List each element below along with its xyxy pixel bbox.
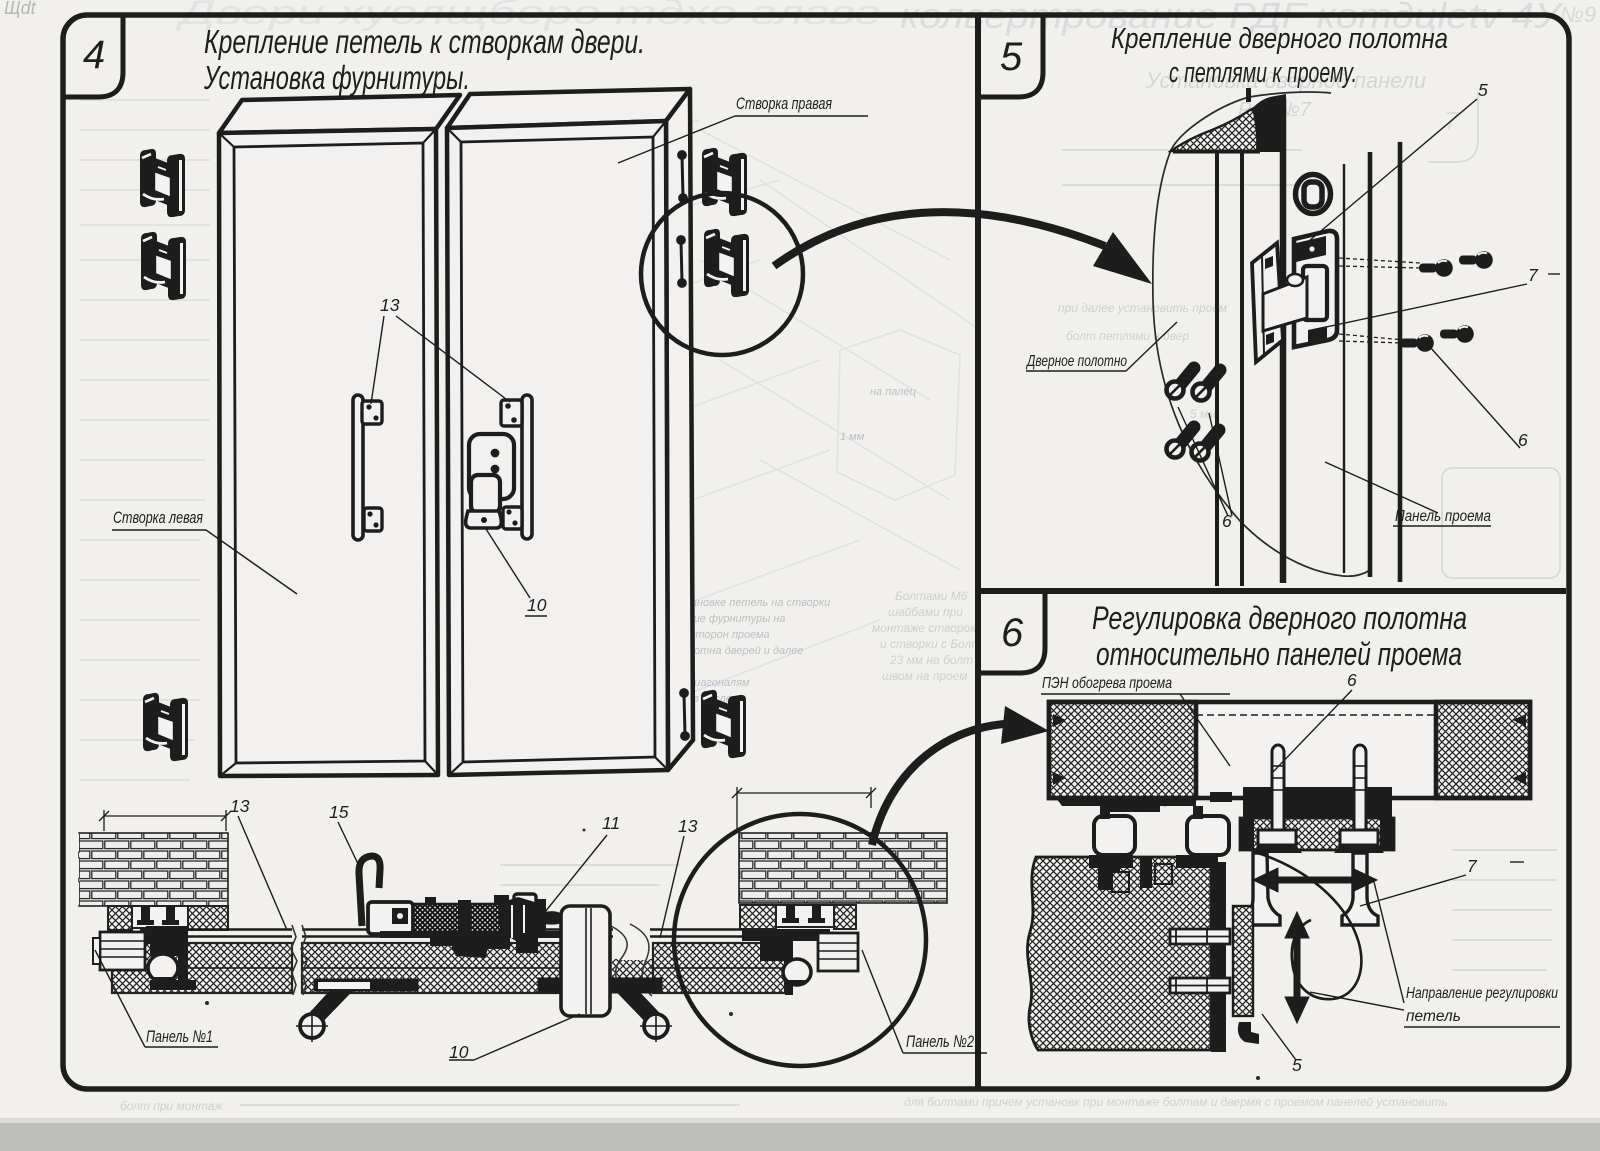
svg-text:23 мм на болт: 23 мм на болт	[889, 653, 973, 667]
svg-text:Установка фурнитуры.: Установка фурнитуры.	[203, 59, 470, 96]
svg-text:Направление регулировки: Направление регулировки	[1406, 985, 1558, 1002]
svg-text:ПЭН обогрева проема: ПЭН обогрева проема	[1042, 675, 1172, 692]
svg-text:Регулировка дверного полотна: Регулировка дверного полотна	[1092, 600, 1467, 636]
svg-text:5: 5	[1478, 80, 1488, 100]
svg-text:для болтами причем установк: для болтами причем установк при монтаже …	[904, 1095, 1448, 1109]
svg-text:Створка левая: Створка левая	[113, 509, 203, 527]
svg-text:1 мм: 1 мм	[840, 431, 865, 443]
svg-text:монтаже створок: монтаже створок	[872, 621, 977, 635]
svg-text:с петлями к проему.: с петлями к проему.	[1169, 57, 1357, 89]
svg-text:и створки с Болт: и створки с Болт	[880, 637, 981, 651]
svg-text:Створка правая: Створка правая	[736, 95, 832, 113]
svg-text:7: 7	[1528, 265, 1539, 285]
svg-text:6: 6	[1347, 670, 1357, 690]
svg-text:13: 13	[380, 295, 400, 315]
svg-text:при далее установить проем: при далее установить проем	[1058, 301, 1227, 315]
svg-text:относительно панелей проема: относительно панелей проема	[1096, 636, 1462, 672]
svg-text:10: 10	[449, 1042, 469, 1062]
svg-text:Панель проема: Панель проема	[1395, 508, 1491, 525]
svg-text:5: 5	[1000, 35, 1023, 79]
svg-text:Дверное полотно: Дверное полотно	[1026, 353, 1128, 370]
svg-text:шайбами при: шайбами при	[888, 605, 963, 619]
svg-text:11: 11	[602, 813, 620, 833]
svg-text:5: 5	[1292, 1055, 1302, 1075]
svg-text:Крепление петель к створкам дв: Крепление петель к створкам двери.	[204, 23, 645, 60]
svg-text:7: 7	[1467, 856, 1478, 876]
svg-text:швом на проем: швом на проем	[882, 669, 968, 683]
svg-text:Панель №1: Панель №1	[146, 1027, 213, 1046]
svg-text:4: 4	[83, 33, 105, 77]
svg-text:петель: петель	[1406, 1008, 1461, 1025]
svg-text:13: 13	[230, 796, 250, 816]
svg-text:13: 13	[678, 816, 698, 836]
svg-text:болт при монтаж: болт при монтаж	[120, 1099, 224, 1113]
svg-text:6: 6	[1001, 611, 1024, 655]
svg-text:Крепление дверного полотна: Крепление дверного полотна	[1111, 23, 1448, 55]
svg-text:Болтами М6: Болтами М6	[895, 589, 968, 603]
svg-text:Панель №2: Панель №2	[906, 1032, 974, 1051]
svg-text:15: 15	[329, 802, 349, 822]
svg-text:5 мм: 5 мм	[1190, 407, 1216, 421]
svg-text:на палец: на палец	[870, 386, 916, 398]
svg-text:Щdt: Щdt	[4, 0, 37, 18]
svg-text:болт петлями в двер: болт петлями в двер	[1066, 329, 1189, 343]
